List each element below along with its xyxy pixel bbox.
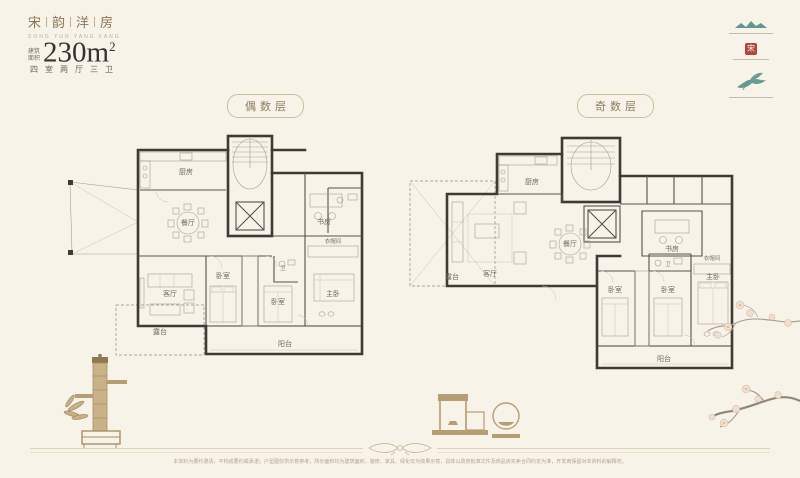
brand-separator	[70, 17, 71, 27]
room-label: 卧室	[661, 285, 675, 294]
unit-spec: 四室两厅三卫	[30, 64, 120, 75]
odd-floor-badge: 奇数层	[577, 94, 654, 118]
room-label: 卫	[665, 261, 671, 268]
room-label: 阳台	[278, 339, 292, 348]
room-label: 露台	[445, 272, 459, 281]
brand-separator	[46, 17, 47, 27]
odd-floor-plan: 厨房 餐厅 客厅 卧室 卫 卧室 书房 主卧 衣帽间 阳台 露台	[402, 136, 737, 371]
brand-char: 洋	[76, 12, 89, 31]
room-label: 主卧	[326, 289, 340, 298]
room-label: 卫	[280, 265, 286, 272]
brand-separator	[94, 17, 95, 27]
mountain-icon	[734, 20, 768, 29]
room-label: 客厅	[163, 289, 177, 298]
brand-name: 宋韵洋房	[28, 12, 148, 31]
disclaimer-text: 本资料为要约邀请，不构成要约或承诺；户型图仅供示意参考，所示面积均为建筑面积，装…	[112, 458, 688, 465]
room-label: 书房	[317, 217, 331, 226]
room-label: 主卧	[706, 272, 720, 281]
brand-char: 房	[100, 12, 113, 31]
room-label: 客厅	[483, 269, 497, 278]
room-label: 书房	[665, 244, 679, 253]
room-label: 衣帽间	[704, 254, 721, 262]
red-seal-logo: 宋	[733, 43, 769, 60]
bamboo-fountain-illustration	[62, 354, 142, 452]
room-label: 卧室	[271, 297, 285, 306]
logo-caption-line	[733, 59, 769, 60]
logo-column: 宋	[716, 20, 786, 107]
teaware-illustration	[428, 392, 524, 446]
room-label: 露台	[153, 327, 167, 336]
poster-page: 宋韵洋房 SONG YUN YANG FANG 建筑 面积 230m2 四室两厅…	[0, 0, 800, 478]
logo-caption-line	[729, 97, 773, 98]
seal-icon: 宋	[745, 43, 757, 55]
plum-blossom-illustration	[688, 283, 800, 435]
unit-area: 建筑 面积 230m2	[28, 33, 116, 67]
area-value: 230m2	[43, 33, 116, 67]
room-label: 餐厅	[181, 218, 195, 227]
room-label: 卧室	[608, 285, 622, 294]
room-label: 厨房	[179, 167, 193, 176]
room-label: 阳台	[657, 354, 671, 363]
room-label: 卧室	[216, 271, 230, 280]
room-label: 厨房	[525, 177, 539, 186]
room-label: 餐厅	[563, 239, 577, 248]
crane-icon	[733, 69, 769, 93]
room-label: 衣帽间	[325, 237, 342, 245]
even-floor-badge: 偶数层	[227, 94, 304, 118]
even-floor-plan: 厨房 餐厅 客厅 卧室 卫 卧室 书房 主卧 衣帽间 阳台 露台	[60, 128, 400, 373]
brand-char: 宋	[28, 12, 41, 31]
crane-logo	[729, 69, 773, 98]
mountain-mark-logo	[729, 20, 773, 34]
brand-char: 韵	[52, 12, 65, 31]
logo-caption-line	[729, 33, 773, 34]
